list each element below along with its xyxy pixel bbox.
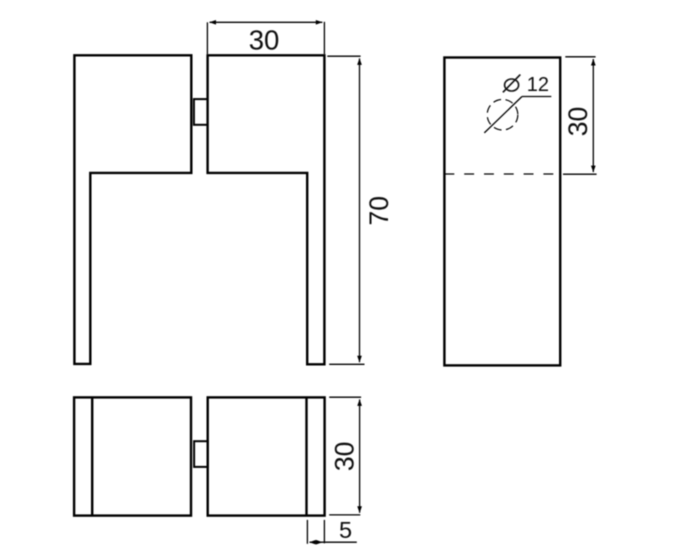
- svg-text:30: 30: [330, 442, 360, 471]
- svg-text:30: 30: [563, 107, 593, 136]
- svg-text:70: 70: [364, 196, 394, 225]
- svg-text:5: 5: [339, 517, 352, 543]
- svg-text:12: 12: [527, 74, 549, 96]
- svg-text:30: 30: [249, 24, 280, 55]
